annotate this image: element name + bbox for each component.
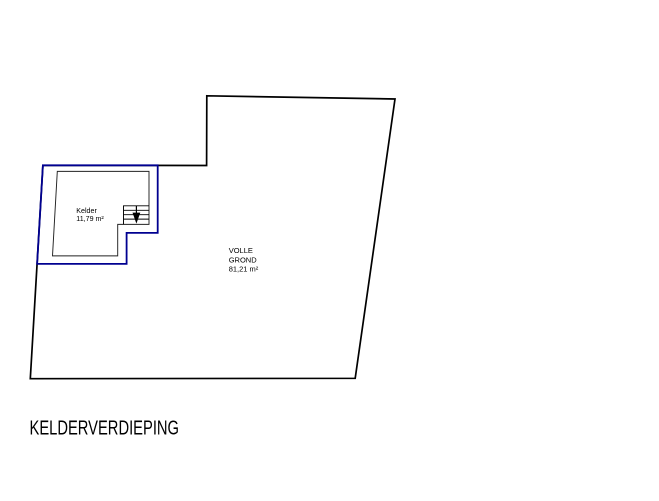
svg-text:KELDERVERDIEPING: KELDERVERDIEPING (30, 418, 180, 440)
svg-text:GROND: GROND (229, 255, 258, 264)
svg-text:11,79 m²: 11,79 m² (76, 215, 104, 223)
svg-text:81,21 m²: 81,21 m² (229, 264, 259, 273)
svg-text:Kelder: Kelder (76, 207, 97, 215)
svg-text:VOLLE: VOLLE (229, 246, 253, 255)
